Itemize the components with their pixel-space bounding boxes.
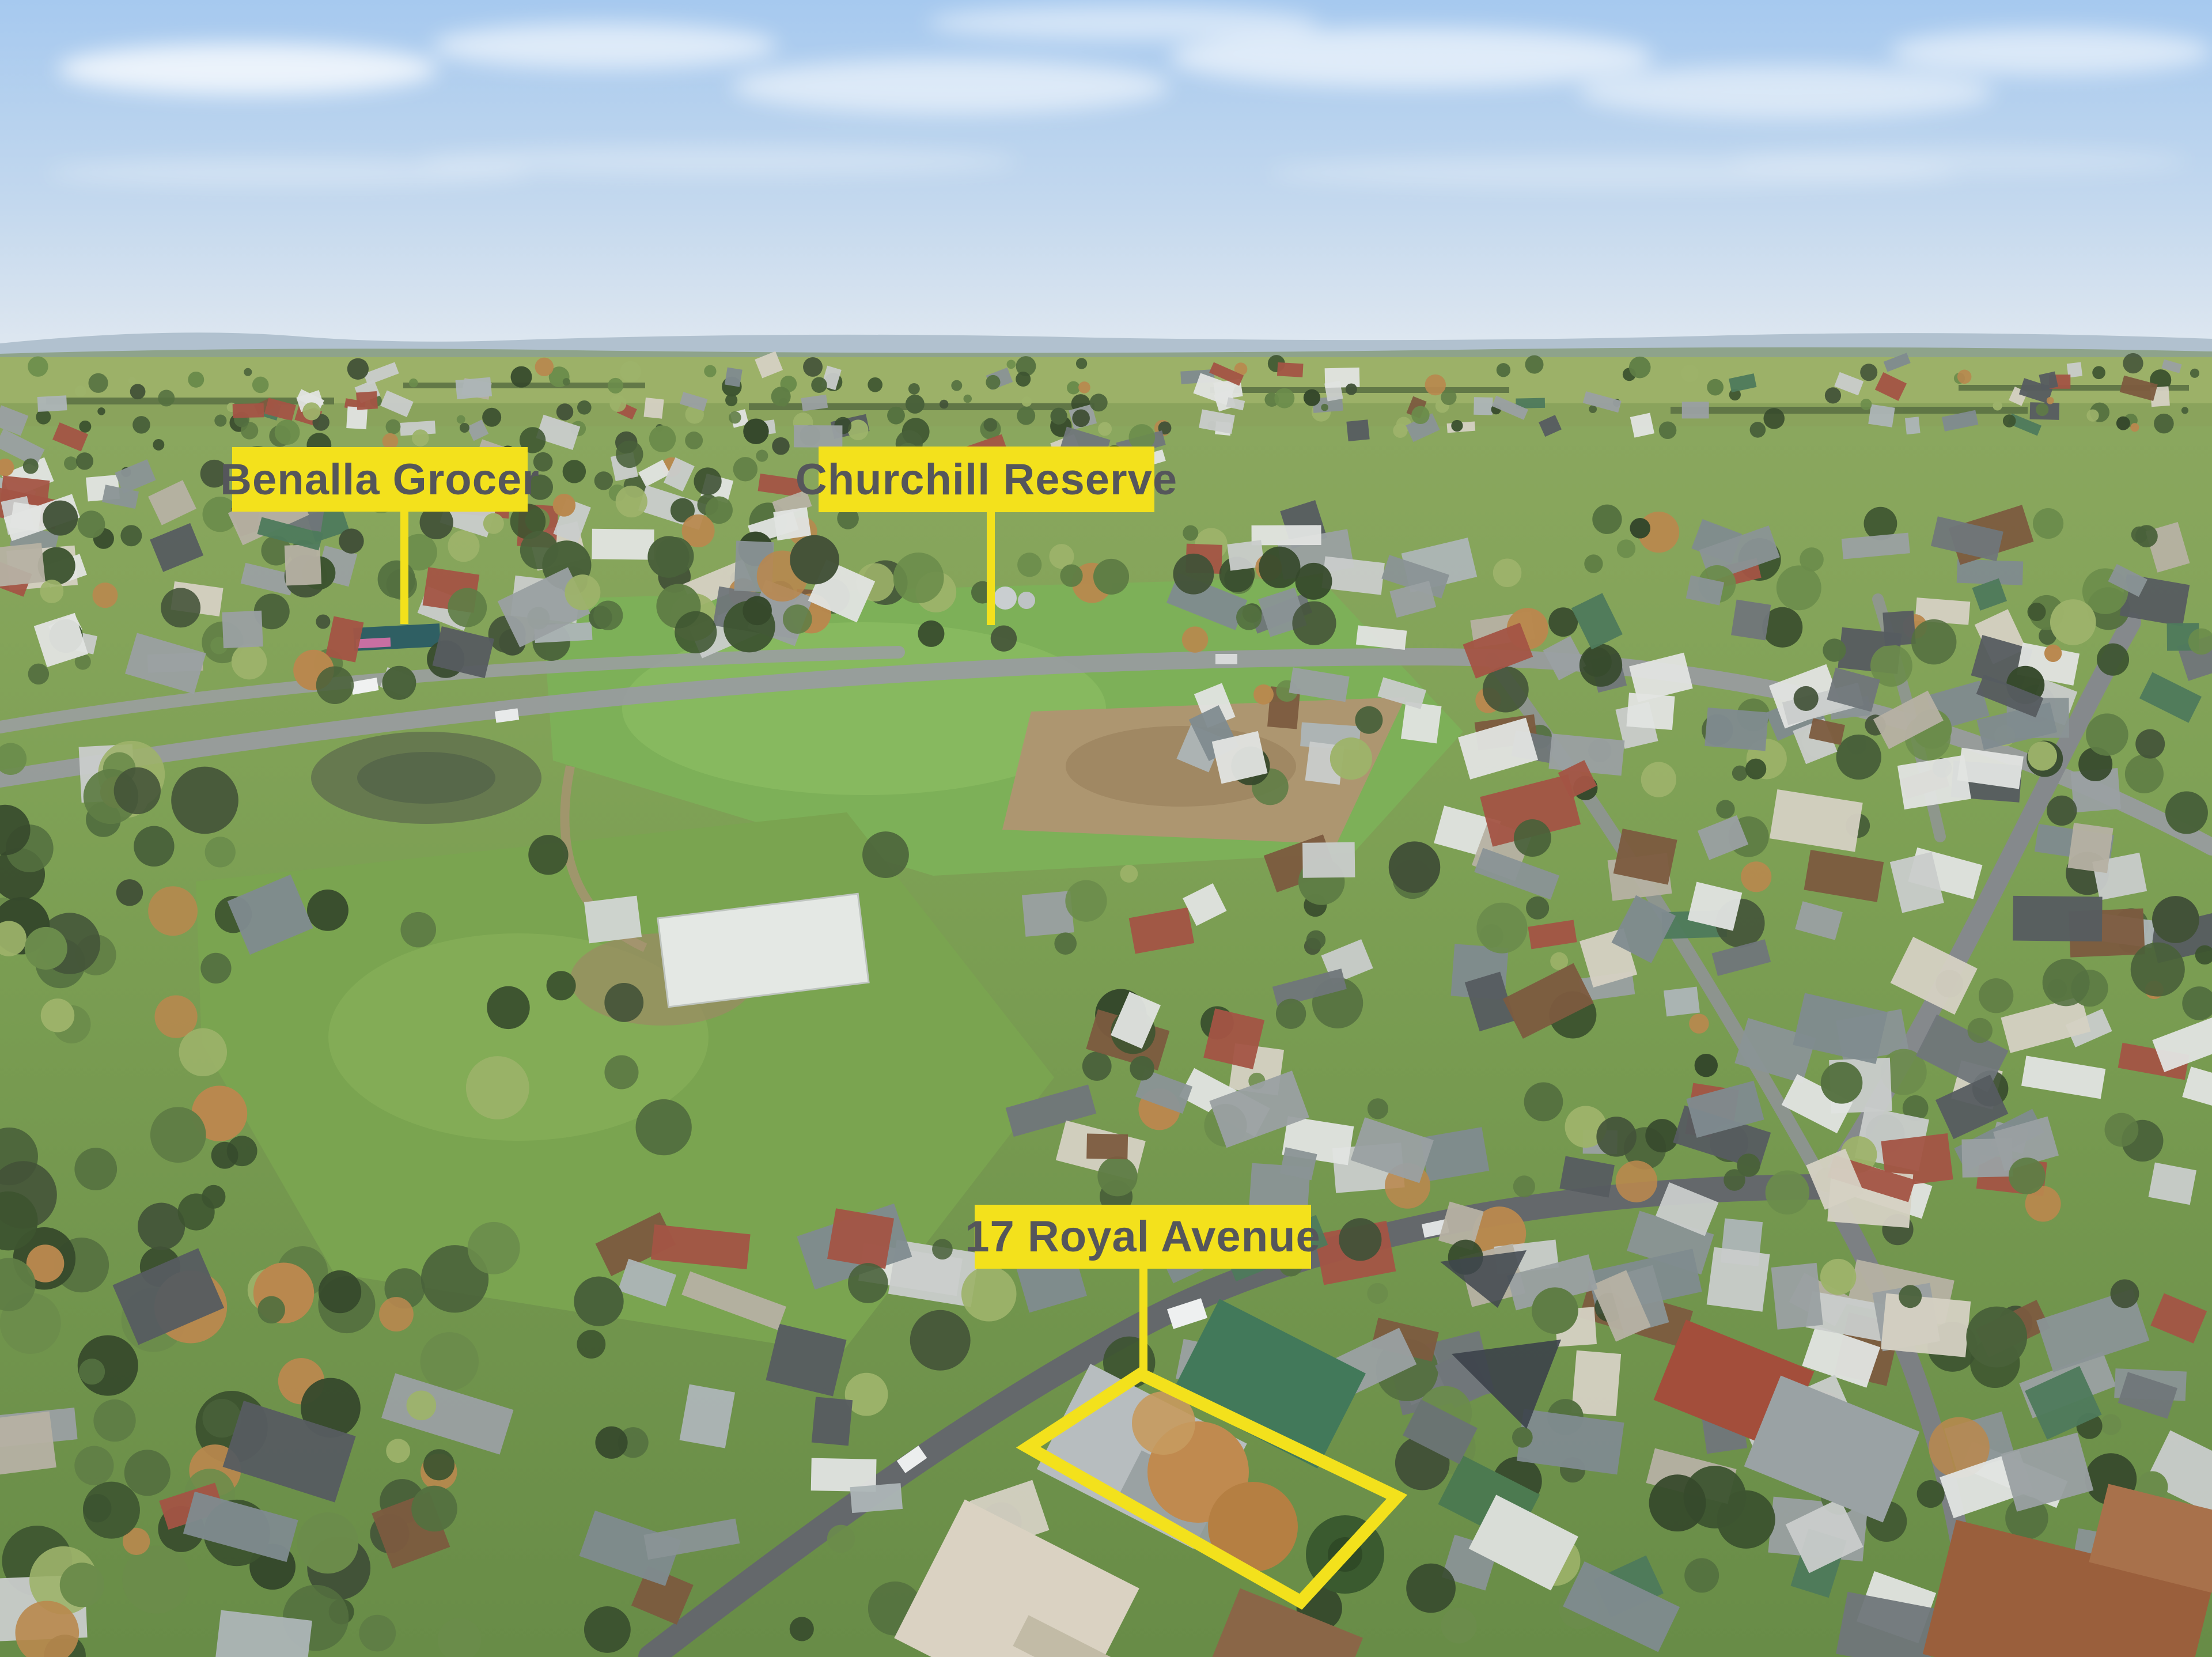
location-label-text: Benalla Grocer <box>220 455 540 505</box>
pointer-line-churchill-reserve <box>987 510 995 625</box>
property-boundary-outline <box>1028 1374 1397 1602</box>
location-label-text: 17 Royal Avenue <box>965 1212 1321 1262</box>
location-label-17-royal-avenue: 17 Royal Avenue <box>975 1205 1311 1269</box>
annotation-overlay <box>0 0 2212 1657</box>
location-label-churchill-reserve: Churchill Reserve <box>819 447 1154 512</box>
location-label-benalla-grocer: Benalla Grocer <box>232 447 528 512</box>
location-label-text: Churchill Reserve <box>796 455 1177 505</box>
pointer-line-benalla-grocer <box>400 509 408 624</box>
pointer-line-royal-avenue <box>1139 1266 1147 1379</box>
aerial-listing-photo: Benalla Grocer Churchill Reserve 17 Roya… <box>0 0 2212 1657</box>
